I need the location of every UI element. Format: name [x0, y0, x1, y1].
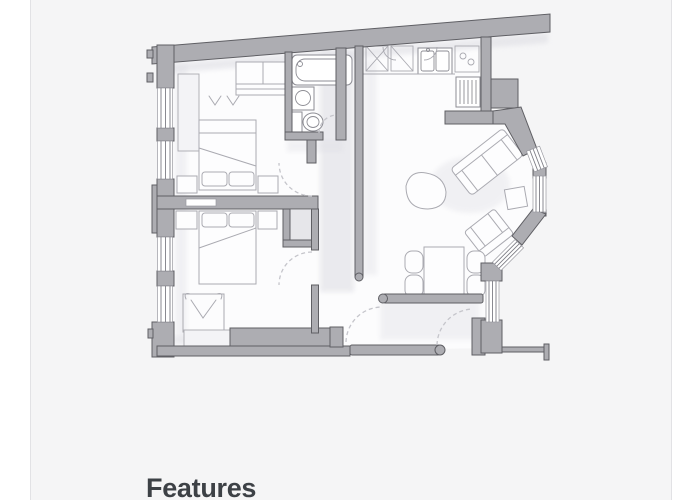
nightstand — [258, 211, 277, 229]
dining-set — [405, 247, 485, 297]
dining-table — [424, 247, 464, 295]
floorplan-image[interactable] — [0, 0, 700, 500]
window — [158, 286, 173, 322]
window — [158, 237, 173, 271]
nightstand — [176, 211, 197, 229]
kitchen-sink — [418, 48, 452, 74]
nightstand — [177, 176, 197, 193]
tall-cupboard — [178, 74, 199, 151]
nightstand — [258, 176, 278, 193]
toilet — [292, 112, 302, 132]
window — [158, 88, 173, 128]
chimney-breast — [230, 328, 343, 346]
bay-window — [533, 176, 546, 212]
window — [486, 281, 499, 322]
window — [158, 141, 173, 179]
features-heading: Features — [146, 474, 256, 502]
side-table — [504, 186, 527, 209]
